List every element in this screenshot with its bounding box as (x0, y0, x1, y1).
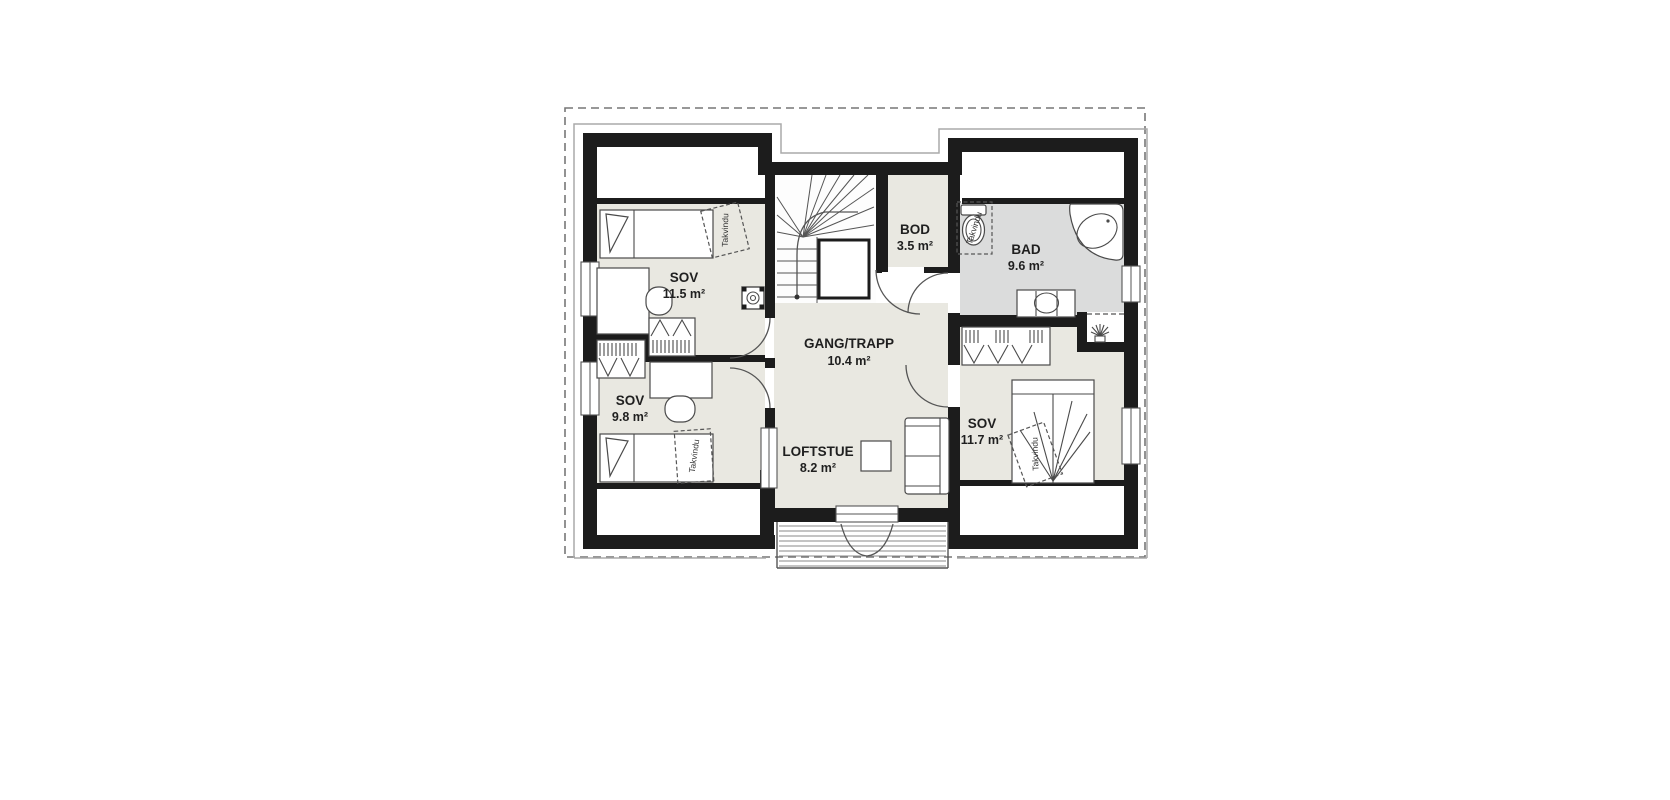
table-icon (861, 441, 891, 471)
svg-text:11.7 m²: 11.7 m² (961, 433, 1003, 447)
bed-icon (600, 210, 713, 258)
stairwell-void (819, 240, 869, 298)
chimney-icon (742, 287, 764, 309)
svg-text:11.5 m²: 11.5 m² (663, 287, 705, 301)
svg-text:GANG/TRAPP: GANG/TRAPP (804, 336, 894, 351)
svg-text:10.4 m²: 10.4 m² (827, 354, 870, 368)
window-sov-11-7 (1122, 408, 1140, 464)
floor-plan-drawing: Takvindu Takvindu Takvindu Takvindu SOV … (0, 0, 1670, 800)
roof-window-label: Takvindu (720, 213, 731, 247)
floor-bod (888, 175, 948, 267)
window-sov-9-8 (581, 362, 599, 415)
svg-text:9.6 m²: 9.6 m² (1008, 259, 1044, 273)
balcony-door-sill (836, 506, 898, 522)
stair-walkline-start (795, 295, 800, 300)
double-bed-icon (1012, 380, 1094, 483)
roof-window-label: Takvindu (1029, 437, 1040, 471)
svg-text:BOD: BOD (900, 222, 930, 237)
sofa-icon (905, 418, 949, 494)
washbasin-icon (1017, 290, 1075, 317)
svg-text:9.8 m²: 9.8 m² (612, 410, 648, 424)
svg-text:BAD: BAD (1011, 242, 1040, 257)
wardrobe-icon (962, 327, 1050, 365)
svg-text:SOV: SOV (670, 270, 699, 285)
window-loftstue (761, 428, 777, 488)
wardrobe-icon (649, 318, 695, 356)
balcony (777, 522, 948, 568)
svg-text:SOV: SOV (616, 393, 645, 408)
wardrobe-icon (597, 340, 645, 378)
svg-text:LOFTSTUE: LOFTSTUE (782, 444, 853, 459)
svg-text:8.2 m²: 8.2 m² (800, 461, 836, 475)
svg-text:SOV: SOV (968, 416, 997, 431)
window-bad (1122, 266, 1140, 302)
floor-plan-page: Takvindu Takvindu Takvindu Takvindu SOV … (0, 0, 1670, 800)
svg-text:3.5 m²: 3.5 m² (897, 239, 933, 253)
window-sov-11-5 (581, 262, 599, 316)
balcony-decking (779, 526, 946, 566)
